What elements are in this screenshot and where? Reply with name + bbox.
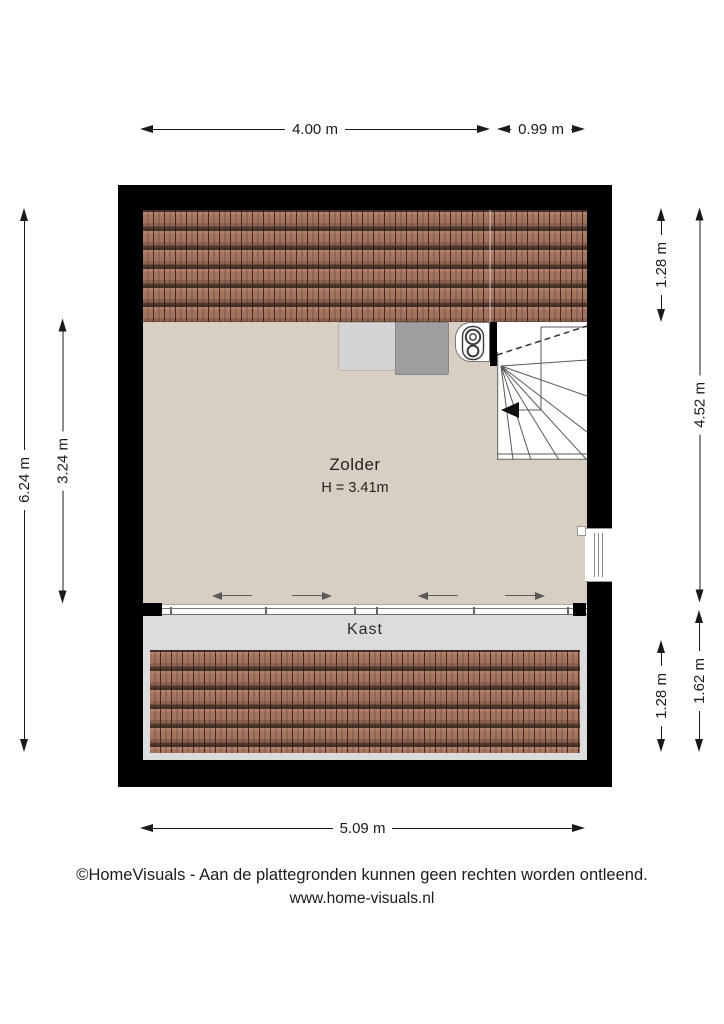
dimension-top-room-width: 4.00 m xyxy=(140,116,490,142)
arrowhead-icon xyxy=(140,125,153,133)
sliding-door-arrow-right-icon xyxy=(505,591,545,600)
dimension-left-room-depth: 3.24 m xyxy=(50,319,76,604)
dimension-bottom-total-width: 5.09 m xyxy=(140,815,585,841)
track-end-wall-left xyxy=(140,603,162,616)
boiler-icon xyxy=(459,324,487,362)
arrowhead-icon xyxy=(696,207,704,220)
roof-slope-top xyxy=(143,210,587,322)
dimension-right-room-height: 4.52 m xyxy=(687,208,713,603)
arrowhead-icon xyxy=(140,824,153,832)
dimension-label: 4.52 m xyxy=(691,375,708,435)
dimension-label: 1.28 m xyxy=(653,235,670,295)
arrowhead-icon xyxy=(20,739,28,752)
track-divider xyxy=(170,607,172,615)
roof-slope-bottom xyxy=(150,650,580,753)
footer-copyright: ©HomeVisuals - Aan de plattegronden kunn… xyxy=(0,866,724,885)
track-end-wall-right xyxy=(573,603,586,616)
dimension-label: 1.28 m xyxy=(653,666,670,726)
dimension-right-roof-bottom: 1.28 m xyxy=(648,640,674,752)
arrowhead-icon xyxy=(657,309,665,322)
sliding-door-arrow-right-icon xyxy=(292,591,332,600)
dimension-top-stairs-width: 0.99 m xyxy=(497,116,585,142)
sliding-door-track xyxy=(143,604,587,615)
track-divider xyxy=(354,607,356,615)
track-divider xyxy=(473,607,475,615)
dimension-label: 4.00 m xyxy=(285,121,345,138)
washing-machine xyxy=(338,322,397,371)
arrowhead-icon xyxy=(572,824,585,832)
arrowhead-icon xyxy=(59,591,67,604)
dimension-right-closet-depth: 1.62 m xyxy=(686,610,712,752)
dimension-label: 3.24 m xyxy=(54,431,71,491)
sliding-door-arrow-left-icon xyxy=(418,591,458,600)
arrowhead-icon xyxy=(657,208,665,221)
dryer xyxy=(395,322,449,375)
sliding-door-arrow-left-icon xyxy=(212,591,252,600)
track-divider xyxy=(376,607,378,615)
arrowhead-icon xyxy=(59,318,67,331)
window-frame-notch xyxy=(577,526,586,536)
dimension-left-total-depth: 6.24 m xyxy=(11,208,37,752)
boiler xyxy=(455,322,490,362)
arrowhead-icon xyxy=(696,590,704,603)
room-name-label: Zolder xyxy=(255,455,455,475)
sliding-door-track-line xyxy=(143,608,587,609)
staircase xyxy=(497,322,587,460)
arrowhead-icon xyxy=(695,610,703,623)
track-divider xyxy=(567,607,569,615)
roof-seam xyxy=(489,210,491,322)
window xyxy=(585,528,612,582)
arrowhead-icon xyxy=(497,125,510,133)
arrowhead-icon xyxy=(20,208,28,221)
track-divider xyxy=(265,607,267,615)
arrowhead-icon xyxy=(477,125,490,133)
interior-stub-wall xyxy=(490,322,497,366)
closet-name-label: Kast xyxy=(265,621,465,639)
floor-plan-page: Zolder H = 3.41m Kast 4.00 m 0.99 m 5.09… xyxy=(0,0,724,1024)
arrowhead-icon xyxy=(657,640,665,653)
dimension-label: 0.99 m xyxy=(511,121,571,138)
arrowhead-icon xyxy=(572,125,585,133)
arrowhead-icon xyxy=(695,739,703,752)
arrowhead-icon xyxy=(657,739,665,752)
dimension-label: 1.62 m xyxy=(691,651,708,711)
dimension-label: 6.24 m xyxy=(16,450,33,510)
dimension-label: 5.09 m xyxy=(333,820,393,837)
dimension-right-roof-top: 1.28 m xyxy=(648,208,674,322)
footer-website: www.home-visuals.nl xyxy=(0,890,724,908)
room-height-label: H = 3.41m xyxy=(255,480,455,496)
